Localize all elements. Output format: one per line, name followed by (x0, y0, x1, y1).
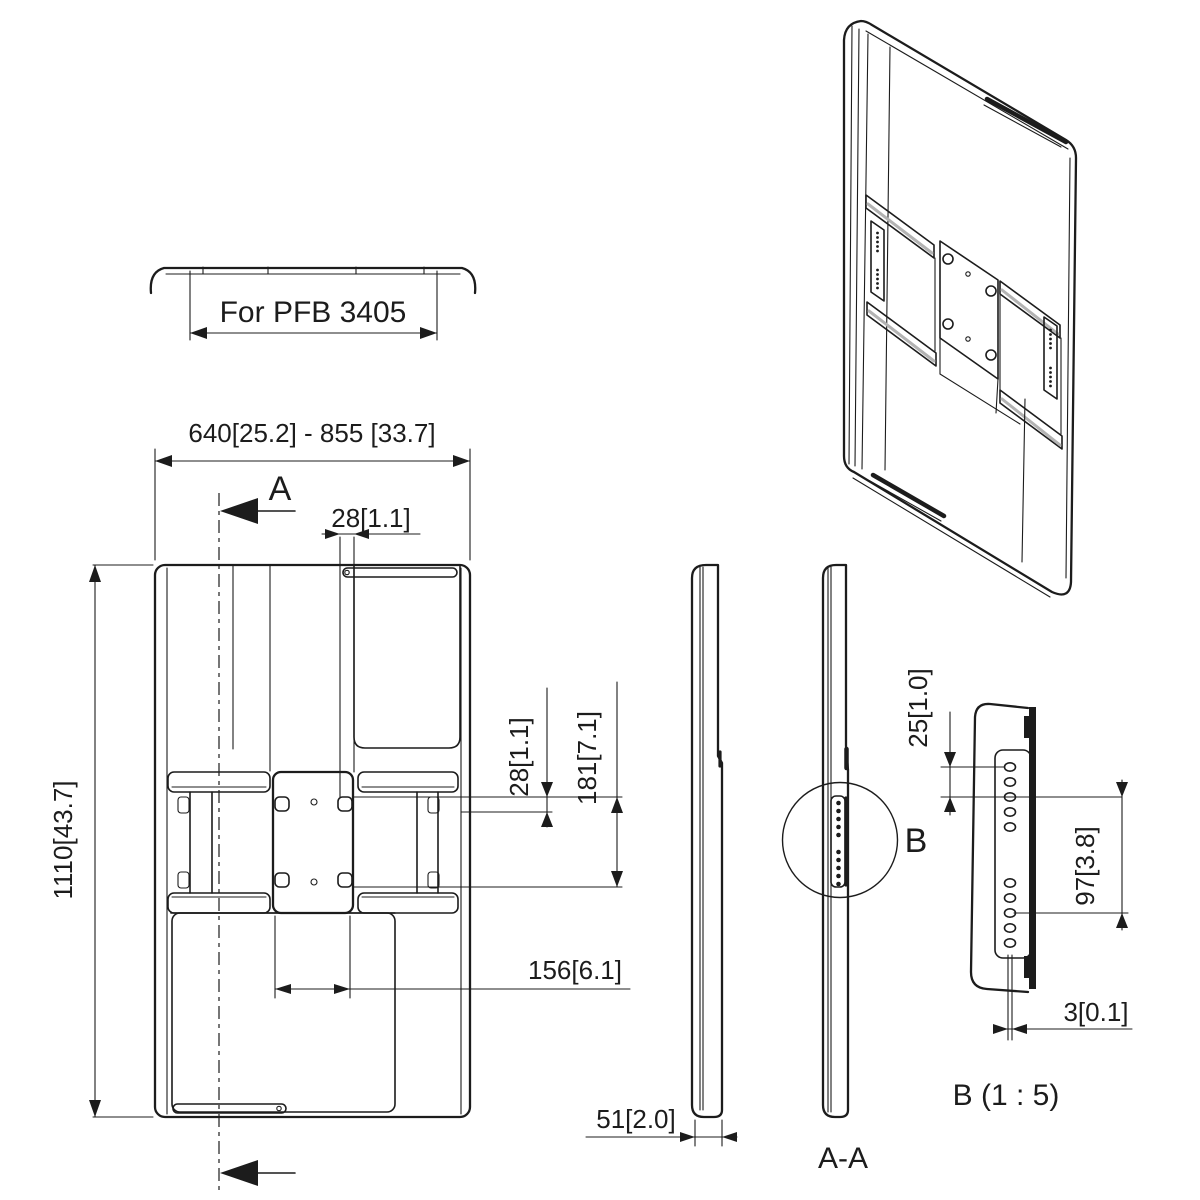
iso-top-slot (987, 99, 1066, 142)
dim-slot-offset-text: 28[1.1] (331, 503, 411, 533)
detail-body-outline (971, 704, 1028, 992)
dim-hole-span-v-text: 181[7.1] (572, 711, 602, 805)
top-view-profile (151, 268, 475, 293)
iso-outline (844, 21, 1076, 594)
section-arrow-bottom (220, 1160, 258, 1186)
pilot-hole (311, 879, 317, 885)
vesa-plate (273, 772, 353, 913)
detail-view-label: B (1 : 5) (953, 1079, 1060, 1112)
detail-edge-strip (1029, 707, 1036, 989)
dim-detail-pitch-text: 25[1.0] (903, 668, 933, 748)
detail-clip-plate (995, 750, 1031, 958)
technical-drawing: For PFB 3405 640[25.2] - 855 [33.7] A 28… (0, 0, 1200, 1200)
mount-hole (338, 797, 352, 811)
dim-height: 1110[43.7] (48, 565, 153, 1117)
top-view: For PFB 3405 (151, 267, 475, 340)
dim-detail-span-text: 97[3.8] (1070, 826, 1100, 906)
dim-slot-offset: 28[1.1] (322, 503, 420, 797)
section-cut-a: A (219, 470, 295, 1191)
dim-arrow (420, 327, 437, 339)
dim-depth: 51[2.0] (586, 1104, 737, 1146)
section-arrow-label: A (269, 470, 292, 508)
pilot-hole (311, 799, 317, 805)
top-slot (343, 568, 457, 577)
dim-depth-text: 51[2.0] (596, 1104, 676, 1134)
drawing-sheet: For PFB 3405 640[25.2] - 855 [33.7] A 28… (0, 0, 1200, 1200)
rail-top-right (358, 772, 458, 792)
dim-hole-span-h: 156[6.1] (275, 916, 630, 998)
upper-bracket-plate (354, 566, 460, 748)
dim-width-range: 640[25.2] - 855 [33.7] (155, 418, 470, 560)
iso-bottom-slot (873, 475, 944, 516)
detail-marker-label: B (905, 822, 928, 860)
section-arrow-top (220, 498, 258, 524)
side-view (692, 565, 722, 1117)
isometric-view (844, 21, 1076, 597)
iso-vesa-plate (940, 241, 998, 379)
mount-hole (275, 873, 289, 887)
front-panel-outline (155, 565, 470, 1117)
dim-height-text: 1110[43.7] (48, 780, 78, 899)
dim-arrow (190, 327, 207, 339)
dim-detail-thickness-text: 3[0.1] (1063, 997, 1128, 1027)
detail-circle-b (783, 783, 898, 898)
lower-panel (172, 913, 395, 1112)
section-view-aa: B A-A (783, 565, 928, 1175)
dim-hole-offsets: 28[1.1] 181[7.1] (354, 682, 623, 887)
section-view-label: A-A (818, 1142, 868, 1175)
rail-bottom-right (358, 893, 458, 913)
side-profile-outline (692, 565, 722, 1117)
dim-hole-span-h-text: 156[6.1] (528, 955, 622, 985)
dim-width-range-text: 640[25.2] - 855 [33.7] (188, 418, 435, 448)
mount-hole (338, 873, 352, 887)
front-view (155, 565, 470, 1117)
detail-view-b: 25[1.0] 97[3.8] 3[0.1] B (1 : 5) (903, 668, 1132, 1112)
mount-hole (275, 797, 289, 811)
top-view-label: For PFB 3405 (220, 296, 407, 329)
dim-hole-offset-text: 28[1.1] (504, 717, 534, 797)
